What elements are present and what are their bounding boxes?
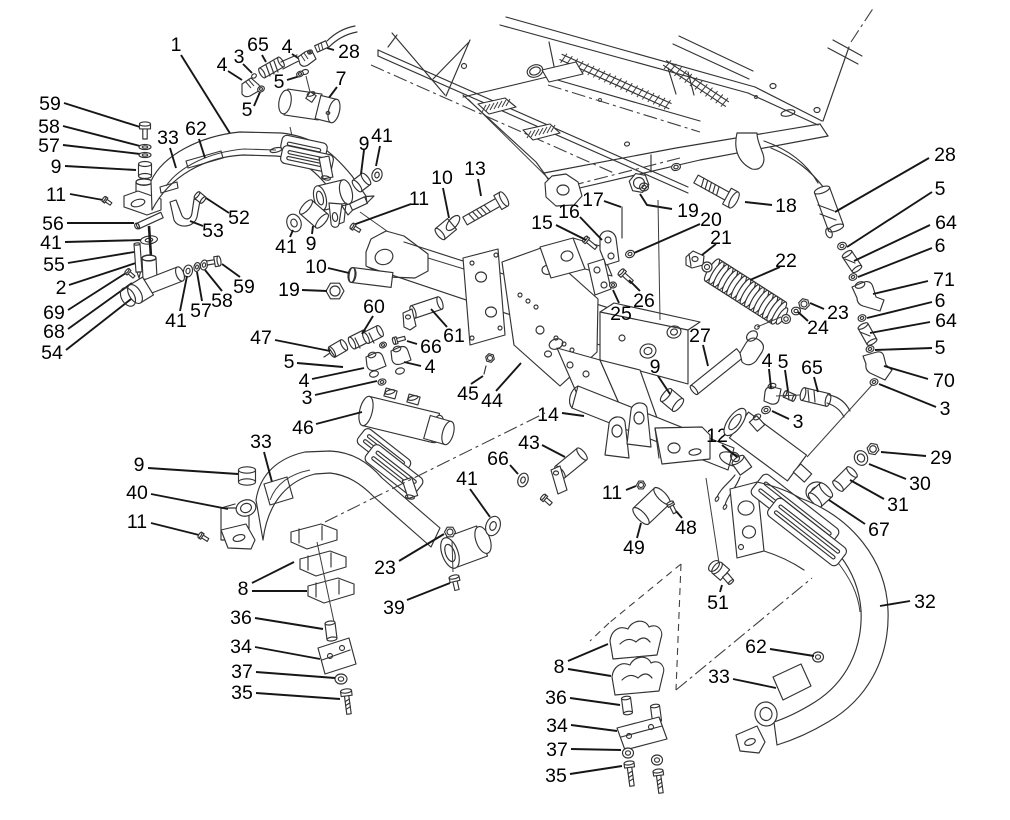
- svg-text:55: 55: [43, 254, 65, 276]
- svg-text:41: 41: [456, 468, 478, 490]
- svg-text:60: 60: [363, 296, 385, 318]
- svg-text:45: 45: [457, 383, 479, 405]
- svg-text:5: 5: [284, 351, 295, 373]
- svg-text:48: 48: [675, 517, 697, 539]
- svg-text:28: 28: [338, 41, 360, 63]
- svg-text:59: 59: [39, 93, 61, 115]
- svg-text:9: 9: [134, 454, 145, 476]
- svg-text:36: 36: [230, 607, 252, 629]
- svg-text:27: 27: [689, 325, 711, 347]
- svg-text:4: 4: [762, 350, 773, 372]
- svg-text:41: 41: [371, 125, 393, 147]
- svg-text:34: 34: [546, 715, 568, 737]
- svg-text:3: 3: [793, 411, 804, 433]
- svg-text:24: 24: [807, 317, 829, 339]
- svg-text:18: 18: [775, 195, 797, 217]
- svg-text:26: 26: [633, 290, 655, 312]
- svg-text:49: 49: [623, 537, 645, 559]
- svg-text:16: 16: [558, 201, 580, 223]
- svg-text:9: 9: [51, 156, 62, 178]
- svg-text:62: 62: [745, 636, 767, 658]
- svg-text:66: 66: [487, 448, 509, 470]
- svg-text:2: 2: [56, 277, 67, 299]
- svg-text:17: 17: [582, 189, 604, 211]
- svg-text:43: 43: [518, 432, 540, 454]
- svg-text:5: 5: [242, 99, 253, 121]
- svg-text:41: 41: [40, 232, 62, 254]
- svg-text:65: 65: [801, 357, 823, 379]
- svg-text:53: 53: [202, 220, 224, 242]
- svg-text:8: 8: [238, 578, 249, 600]
- svg-text:3: 3: [302, 387, 313, 409]
- svg-text:23: 23: [374, 557, 396, 579]
- svg-text:46: 46: [292, 417, 314, 439]
- svg-text:11: 11: [46, 184, 66, 206]
- svg-text:33: 33: [250, 431, 272, 453]
- svg-text:44: 44: [481, 390, 503, 412]
- svg-text:36: 36: [545, 687, 567, 709]
- svg-text:62: 62: [185, 118, 207, 140]
- svg-text:10: 10: [431, 167, 453, 189]
- svg-text:4: 4: [425, 356, 436, 378]
- svg-text:23: 23: [827, 302, 849, 324]
- svg-text:34: 34: [230, 636, 252, 658]
- svg-text:61: 61: [443, 325, 465, 347]
- svg-text:37: 37: [546, 739, 568, 761]
- svg-text:66: 66: [420, 336, 442, 358]
- svg-text:11: 11: [127, 511, 147, 533]
- svg-text:1: 1: [171, 34, 182, 56]
- svg-text:9: 9: [650, 356, 661, 378]
- svg-text:5: 5: [274, 71, 285, 93]
- svg-text:6: 6: [935, 290, 946, 312]
- svg-text:54: 54: [41, 342, 63, 364]
- svg-text:41: 41: [165, 310, 187, 332]
- svg-text:13: 13: [464, 158, 486, 180]
- svg-text:47: 47: [250, 327, 272, 349]
- svg-text:19: 19: [278, 279, 300, 301]
- svg-text:15: 15: [531, 212, 553, 234]
- svg-text:51: 51: [707, 592, 729, 614]
- svg-text:35: 35: [231, 682, 253, 704]
- svg-text:33: 33: [157, 127, 179, 149]
- svg-text:70: 70: [933, 370, 955, 392]
- svg-text:30: 30: [909, 473, 931, 495]
- svg-text:25: 25: [610, 303, 632, 325]
- svg-text:31: 31: [887, 494, 909, 516]
- svg-text:19: 19: [677, 200, 699, 222]
- svg-text:4: 4: [282, 36, 293, 58]
- svg-text:68: 68: [43, 321, 65, 343]
- svg-text:35: 35: [545, 765, 567, 787]
- svg-text:8: 8: [554, 656, 565, 678]
- svg-text:64: 64: [935, 212, 957, 234]
- svg-text:5: 5: [935, 337, 946, 359]
- svg-text:57: 57: [38, 135, 60, 157]
- svg-text:28: 28: [934, 144, 956, 166]
- svg-text:29: 29: [930, 447, 952, 469]
- svg-text:33: 33: [708, 666, 730, 688]
- svg-text:10: 10: [305, 256, 327, 278]
- svg-text:65: 65: [247, 34, 269, 56]
- svg-text:14: 14: [537, 404, 559, 426]
- svg-text:3: 3: [940, 398, 951, 420]
- svg-text:4: 4: [217, 54, 228, 76]
- svg-text:67: 67: [868, 519, 890, 541]
- svg-text:9: 9: [306, 233, 317, 255]
- svg-text:7: 7: [336, 68, 347, 90]
- svg-text:59: 59: [233, 276, 255, 298]
- svg-text:5: 5: [778, 351, 789, 373]
- svg-text:5: 5: [935, 178, 946, 200]
- svg-text:32: 32: [914, 591, 936, 613]
- svg-text:52: 52: [228, 207, 250, 229]
- svg-text:11: 11: [409, 188, 429, 210]
- svg-text:64: 64: [935, 310, 957, 332]
- svg-text:40: 40: [126, 482, 148, 504]
- svg-text:37: 37: [231, 661, 253, 683]
- svg-text:41: 41: [275, 236, 297, 258]
- svg-text:11: 11: [602, 482, 622, 504]
- svg-text:58: 58: [211, 290, 233, 312]
- svg-text:57: 57: [190, 300, 212, 322]
- svg-text:6: 6: [935, 235, 946, 257]
- svg-text:71: 71: [933, 269, 955, 291]
- svg-text:39: 39: [383, 597, 405, 619]
